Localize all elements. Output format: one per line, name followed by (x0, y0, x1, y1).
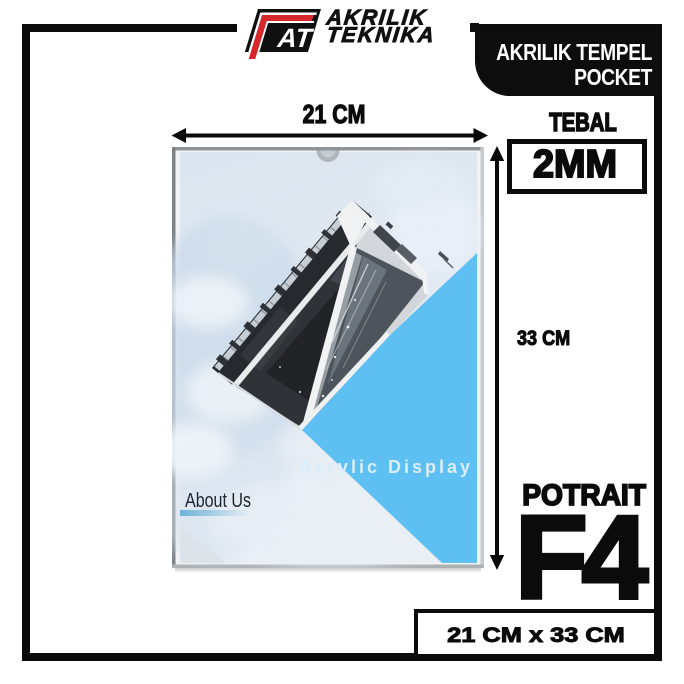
svg-text:Acrylic Display: Acrylic Display (299, 457, 473, 477)
svg-text:About Us: About Us (185, 489, 251, 512)
svg-text:TEKNIKA: TEKNIKA (325, 22, 436, 47)
